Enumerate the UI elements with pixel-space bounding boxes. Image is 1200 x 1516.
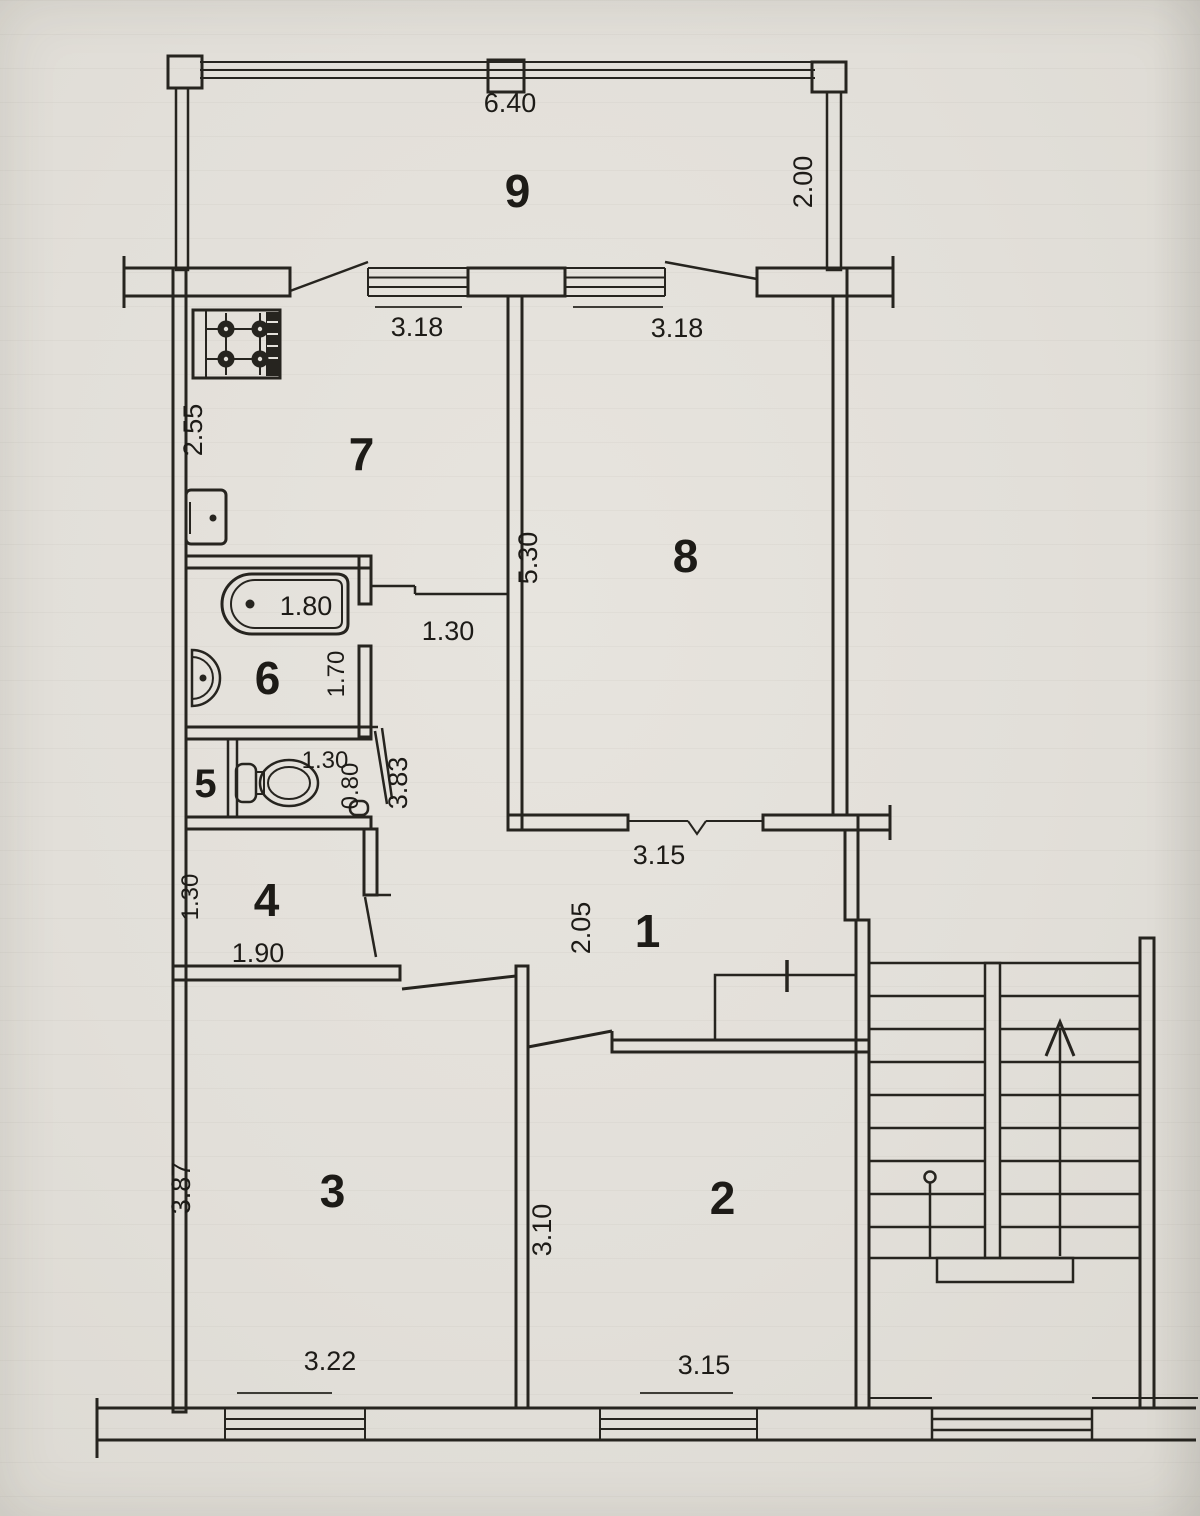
dim-arrow-room2-window [640, 1389, 733, 1398]
room4-right-wall [364, 829, 377, 895]
room4-room3-wall [173, 966, 400, 980]
stairwell [869, 938, 1154, 1408]
hall-top-wall-left [508, 815, 628, 830]
dim-room2-depth: 3.10 [527, 1204, 557, 1257]
stair-right-wall [1140, 938, 1154, 1408]
dim-room2-window: 3.15 [678, 1350, 731, 1380]
room3-room2-wall [516, 966, 528, 1408]
stair-stringer [985, 963, 1000, 1258]
entrance-steps [932, 1408, 1092, 1440]
dim-room8-depth: 5.30 [513, 532, 543, 585]
kitchen-balcony-door-leaf [290, 262, 368, 291]
stair-newel-post [925, 1172, 936, 1183]
kitchen-window-hatch [368, 268, 468, 296]
dim-arrow-kitchen-window [375, 303, 462, 312]
wall-lines [97, 1408, 1196, 1440]
room4-door-leaf [365, 897, 376, 957]
bathroom-right-wall-upper [359, 556, 371, 604]
wall-stub [858, 815, 890, 830]
balcony-post-right [812, 62, 846, 92]
balcony-wall-left [176, 88, 188, 270]
label-room-4: 4 [254, 874, 281, 926]
stair-treads [869, 963, 1140, 1258]
hall-top-wall-right [763, 815, 858, 830]
wall-stub-right [847, 268, 893, 296]
room3-door-leaf [402, 976, 516, 989]
dim-room4-depth: 1.30 [177, 874, 204, 921]
stove-icon [193, 310, 280, 378]
label-room-5: 5 [194, 762, 217, 806]
room8-window-hatch [565, 268, 665, 296]
dim-room3-depth: 3.87 [166, 1162, 196, 1215]
label-room-8: 8 [673, 530, 700, 582]
dim-corridor-length: 3.83 [383, 757, 413, 810]
stairs-up-arrow-icon [1046, 1022, 1074, 1256]
balcony-railing [200, 62, 815, 78]
dim-arrow-room8-window [573, 303, 663, 312]
dim-balcony-width: 6.40 [484, 88, 537, 118]
label-room-1: 1 [635, 905, 662, 957]
stair-left-room2-right-wall [856, 920, 869, 1408]
label-room-6: 6 [255, 652, 282, 704]
wall-segment [757, 268, 847, 296]
dim-bath-depth: 1.70 [323, 651, 350, 698]
bathroom-top-wall [186, 556, 371, 568]
dim-room3-window: 3.22 [304, 1346, 357, 1376]
kitchen-sink-icon [186, 490, 226, 544]
dim-tub-length: 1.80 [280, 591, 333, 621]
room3-window-hatch [225, 1408, 365, 1440]
dim-balcony-depth: 2.00 [788, 156, 818, 209]
dim-passage-width: 1.30 [422, 616, 475, 646]
dim-room8-door-wall: 3.15 [633, 840, 686, 870]
dim-room4-width: 1.90 [232, 938, 285, 968]
room8-door-opening [628, 821, 763, 834]
hall-right-wall [845, 830, 858, 920]
bottom-exterior-wall [97, 1398, 1198, 1458]
dim-room8-window: 3.18 [651, 313, 704, 343]
bathroom-right-wall-lower [359, 646, 371, 737]
washbasin-icon [192, 650, 220, 706]
label-room-2: 2 [710, 1172, 737, 1224]
label-room-3: 3 [320, 1165, 347, 1217]
labels: 9 7 8 6 5 4 1 3 2 6.40 2.00 3.18 3.18 2.… [166, 88, 818, 1380]
dim-kitchen-window: 3.18 [391, 312, 444, 342]
dim-hall-depth: 2.05 [566, 902, 596, 955]
room2-window-hatch [600, 1408, 757, 1440]
room2-door-leaf [528, 1031, 612, 1047]
wc-bottom-wall [186, 817, 371, 829]
dim-wc-depth: 0.80 [337, 763, 364, 810]
dim-kitchen-depth: 2.55 [178, 404, 208, 457]
stair-landing [937, 1258, 1073, 1282]
floor-plan: 9 7 8 6 5 4 1 3 2 6.40 2.00 3.18 3.18 2.… [0, 0, 1200, 1516]
balcony-post-left [168, 56, 202, 88]
bathroom-wc-wall [186, 727, 371, 739]
label-room-7: 7 [349, 428, 376, 480]
passage-wall [371, 586, 508, 594]
dim-arrow-room3-window [237, 1389, 332, 1398]
wall-segment [124, 268, 290, 296]
room8-right-wall [833, 296, 847, 815]
scanned-floor-plan-page: 9 7 8 6 5 4 1 3 2 6.40 2.00 3.18 3.18 2.… [0, 0, 1200, 1516]
room2-top-wall [612, 1040, 869, 1052]
wall-pier [468, 268, 565, 296]
room8-balcony-door-leaf [665, 262, 757, 279]
balcony-wall-right [827, 92, 841, 270]
label-room-9: 9 [505, 165, 532, 217]
